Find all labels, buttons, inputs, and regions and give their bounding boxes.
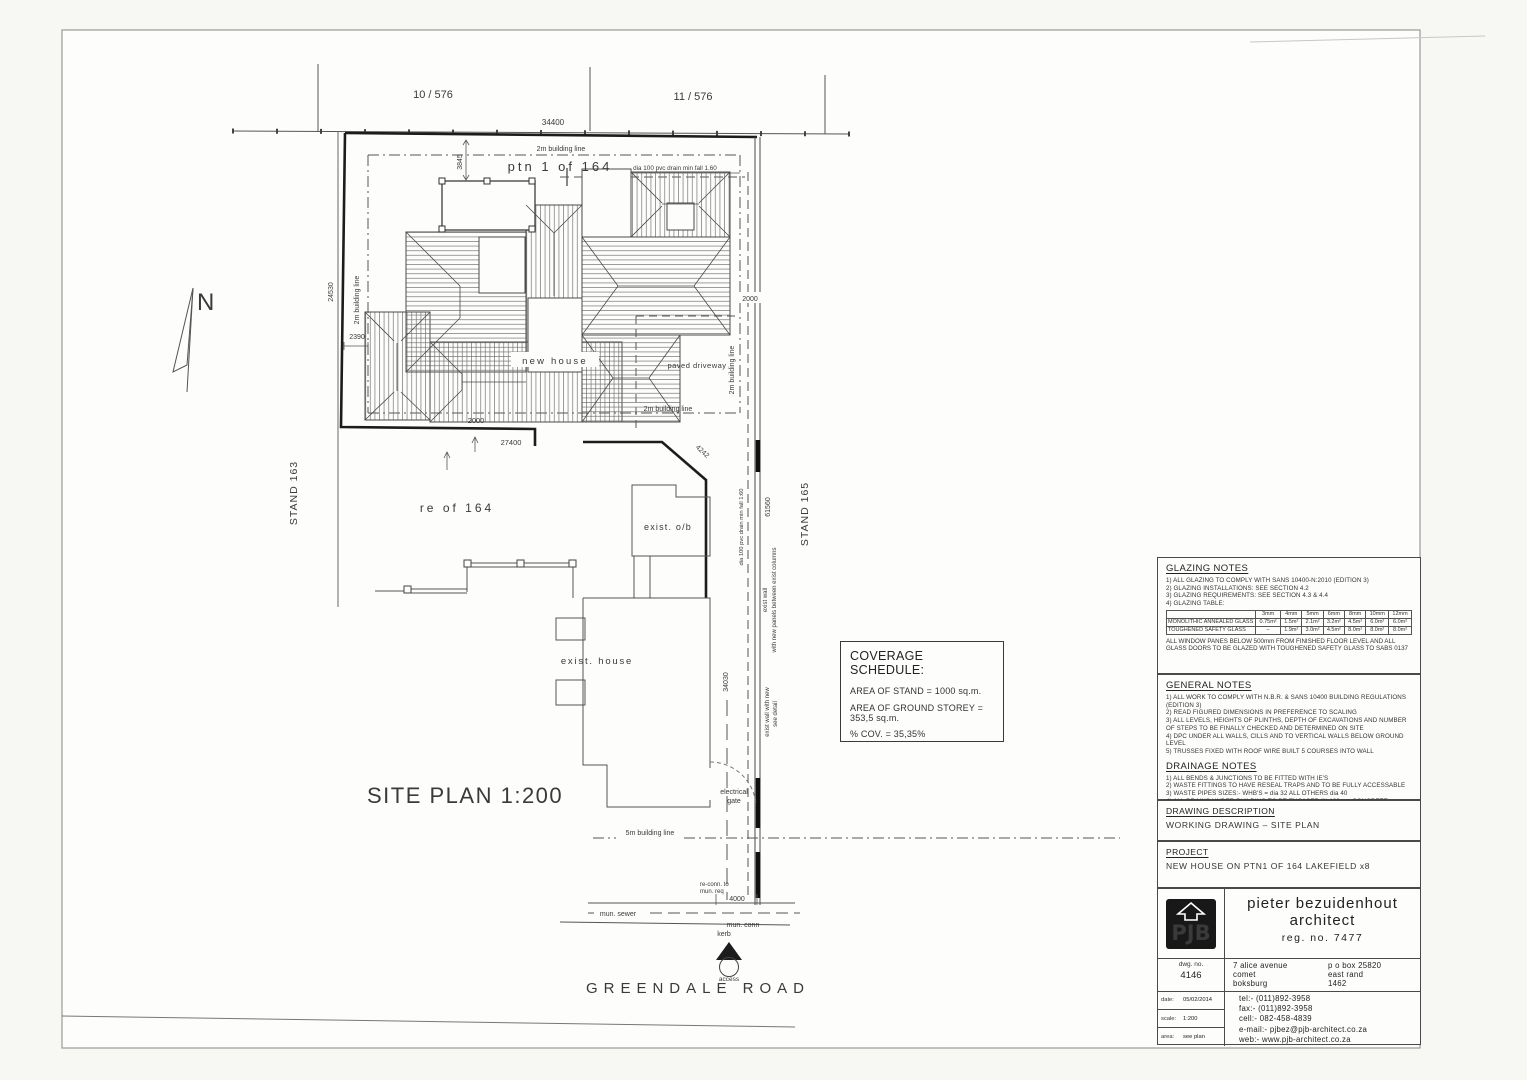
coverage-percent: % COV. = 35,35% — [850, 729, 994, 739]
project-value: NEW HOUSE ON PTN1 OF 164 LAKEFIELD x8 — [1166, 861, 1412, 871]
notes-panel: GLAZING NOTES 1) ALL GLAZING TO COMPLY W… — [1157, 557, 1421, 1045]
paved-driveway-label: paved driveway — [667, 361, 726, 370]
glazing-table: 3mm 4mm 5mm 6mm 8mm 10mm 12mm MONOLITHIC… — [1166, 610, 1412, 635]
pobox-line: 1462 — [1328, 979, 1381, 988]
exist-wall-label-1a: exist wall — [763, 588, 769, 612]
scale-value: 1:200 — [1183, 1016, 1198, 1022]
exist-wall-label-1b: with new panels between exist columns — [772, 547, 778, 653]
exist-wall-label-2b: see detail — [773, 701, 779, 727]
area-label: area: — [1158, 1034, 1183, 1040]
glazing-cell: 8.0m² — [1366, 626, 1389, 634]
plan-title: SITE PLAN 1:200 — [367, 783, 563, 808]
drainage-note: 3) WASTE PIPES SIZES:- WHB'S = dia 32 AL… — [1166, 790, 1412, 798]
dim-4000: 4000 — [729, 896, 745, 903]
glazing-cell: 6.0m² — [1389, 618, 1412, 626]
scale-label: scale: — [1158, 1016, 1183, 1022]
architect-reg-no: reg. no. 7477 — [1225, 932, 1420, 944]
open-court-left — [479, 237, 525, 293]
coverage-schedule: COVERAGE SCHEDULE: AREA OF STAND = 1000 … — [840, 641, 1004, 742]
glazing-col: 8mm — [1345, 610, 1366, 618]
mun-sewer-label: mun. sewer — [600, 911, 637, 918]
dim-3845: 3845 — [457, 154, 464, 170]
glazing-cell: 0.75m² — [1256, 618, 1281, 626]
glazing-row-label: MONOLITHIC ANNEALED GLASS — [1167, 618, 1256, 626]
glazing-cell: 1.5m² — [1281, 618, 1302, 626]
project-box: PROJECT NEW HOUSE ON PTN1 OF 164 LAKEFIE… — [1157, 841, 1421, 888]
dim-27400: 27400 — [501, 438, 522, 447]
logo-cell: PJB — [1158, 889, 1225, 958]
architect-name-line2: architect — [1225, 912, 1420, 929]
north-label: N — [197, 289, 214, 316]
open-gap — [582, 169, 631, 237]
coverage-area-storey: AREA OF GROUND STOREY = 353,5 sq.m. — [850, 703, 994, 723]
glazing-cell: 4.5m² — [1323, 626, 1344, 634]
web-line: web:- www.pjb-architect.co.za — [1239, 1035, 1420, 1045]
ptn-label: ptn 1 of 164 — [508, 159, 613, 174]
electrical-gate-label-2: gate — [727, 798, 741, 805]
building-line-2m-right-label: 2m building line — [729, 346, 736, 395]
drainage-note: 2) WASTE FITTINGS TO HAVE RESEAL TRAPS A… — [1166, 782, 1412, 790]
address-line: comet — [1233, 970, 1328, 979]
address-line: 7 alice avenue — [1233, 961, 1328, 970]
drawing-description-title: DRAWING DESCRIPTION — [1166, 806, 1412, 816]
architect-name-line1: pieter bezuidenhout — [1225, 895, 1420, 912]
glazing-col: 4mm — [1281, 610, 1302, 618]
glazing-col: 12mm — [1389, 610, 1412, 618]
kerb-label: kerb — [717, 931, 731, 938]
new-house-label: new house — [522, 356, 588, 367]
dim-34030: 34030 — [723, 672, 730, 692]
glazing-col: 3mm — [1256, 610, 1281, 618]
title-block: PJB pieter bezuidenhout architect reg. n… — [1157, 888, 1421, 1045]
general-note: 3) ALL LEVELS, HEIGHTS OF PLINTHS, DEPTH… — [1166, 717, 1412, 732]
glazing-notes-title: GLAZING NOTES — [1166, 563, 1412, 574]
glazing-col: 6mm — [1323, 610, 1344, 618]
drawing-description-box: DRAWING DESCRIPTION WORKING DRAWING – SI… — [1157, 800, 1421, 841]
drainage-note: 1) ALL BENDS & JUNCTIONS TO BE FITTED WI… — [1166, 775, 1412, 783]
glazing-cell: 2.1m² — [1302, 618, 1323, 626]
glazing-cell: 4.5m² — [1345, 618, 1366, 626]
coverage-area-stand: AREA OF STAND = 1000 sq.m. — [850, 686, 994, 696]
drawing-sheet: 10 / 576 11 / 576 34400 — [0, 0, 1527, 1080]
dim-24530: 24530 — [328, 282, 335, 302]
glazing-notes-box: GLAZING NOTES 1) ALL GLAZING TO COMPLY W… — [1157, 557, 1421, 674]
mun-conn-label: mun. conn — [727, 922, 760, 929]
open-court-right — [667, 203, 694, 230]
pobox-line: east rand — [1328, 970, 1381, 979]
general-note: 1) ALL WORK TO COMPLY WITH N.B.R. & SANS… — [1166, 694, 1412, 709]
general-notes-title: GENERAL NOTES — [1166, 680, 1412, 691]
dim-2390: 2390 — [349, 334, 365, 341]
glazing-note: 3) GLAZING REQUIREMENTS: SEE SECTION 4.3… — [1166, 592, 1412, 600]
glazing-cell: 1.9m² — [1281, 626, 1302, 634]
coverage-title: COVERAGE SCHEDULE: — [850, 649, 994, 677]
parcel-label-right: 11 / 576 — [674, 91, 713, 103]
email-line: e-mail:- pjbez@pjb-architect.co.za — [1239, 1025, 1420, 1035]
dwg-no-label: dwg. no. — [1158, 961, 1224, 968]
address-line: boksburg — [1233, 979, 1328, 988]
area-value: see plan — [1183, 1034, 1205, 1040]
stand-165-label: STAND 165 — [799, 482, 811, 546]
glazing-row-label: TOUGHENED SAFETY GLASS — [1167, 626, 1256, 634]
glazing-cell: 8.0m² — [1389, 626, 1412, 634]
building-line-2m-left-label: 2m building line — [354, 276, 361, 325]
glazing-cell: 3.2m² — [1323, 618, 1344, 626]
exist-wall-label-2a: exist wall with new — [765, 687, 771, 737]
building-line-2m-top-label: 2m building line — [537, 146, 586, 153]
date-value: 05/02/2014 — [1183, 997, 1212, 1003]
glazing-cell: 8.0m² — [1345, 626, 1366, 634]
glazing-note: 2) GLAZING INSTALLATIONS: SEE SECTION 4.… — [1166, 585, 1412, 593]
exist-ob-label: exist. o/b — [644, 522, 692, 532]
re-of-164-label: re of 164 — [420, 501, 494, 515]
stand-163-label: STAND 163 — [288, 461, 300, 525]
svg-text:PJB: PJB — [1171, 921, 1210, 945]
dim-2000-gate: 2000 — [468, 416, 485, 425]
glazing-col: 5mm — [1302, 610, 1323, 618]
building-line-5m-label: 5m building line — [626, 830, 675, 837]
glazing-note: 1) ALL GLAZING TO COMPLY WITH SANS 10400… — [1166, 577, 1412, 585]
general-note: 4) DPC UNDER ALL WALLS, CILLS AND TO VER… — [1166, 733, 1412, 748]
cell-line: cell:- 082-458-4839 — [1239, 1014, 1420, 1024]
electrical-gate-label-1: electrical — [720, 789, 748, 796]
reconn-label-2: mun. req — [700, 889, 724, 895]
reconn-label-1: re-conn. to — [700, 882, 729, 888]
dim-2000-right: 2000 — [742, 296, 758, 303]
dim-34400: 34400 — [542, 118, 565, 127]
pjb-logo-icon: PJB — [1166, 899, 1216, 949]
general-drainage-notes-box: GENERAL NOTES 1) ALL WORK TO COMPLY WITH… — [1157, 674, 1421, 800]
drainage-notes-title: DRAINAGE NOTES — [1166, 761, 1412, 772]
glazing-cell: 3.0m² — [1302, 626, 1323, 634]
date-label: date: — [1158, 997, 1183, 1003]
building-line-2m-bottom-label: 2m building line — [644, 406, 693, 413]
tel-line: tel:- (011)892-3958 — [1239, 994, 1420, 1004]
glazing-cell: – — [1256, 626, 1281, 634]
fax-line: fax:- (011)892-3958 — [1239, 1004, 1420, 1014]
glazing-cell: 6.0m² — [1366, 618, 1389, 626]
glazing-footnote: ALL WINDOW PANES BELOW 500mm FROM FINISH… — [1166, 638, 1412, 653]
general-note: 5) TRUSSES FIXED WITH ROOF WIRE BUILT 5 … — [1166, 748, 1412, 756]
open-porch — [442, 181, 535, 230]
drain-top-label: dia 100 pvc drain min fall 1.60 — [633, 165, 717, 172]
glazing-col: 10mm — [1366, 610, 1389, 618]
parcel-label-left: 10 / 576 — [413, 89, 453, 101]
drain-side-label: dia 100 pvc drain min fall 1:60 — [739, 488, 745, 565]
road-name: GREENDALE ROAD — [586, 980, 810, 997]
project-title: PROJECT — [1166, 847, 1412, 857]
pobox-line: p o box 25820 — [1328, 961, 1381, 970]
dim-61560: 61560 — [765, 497, 772, 517]
general-note: 2) READ FIGURED DIMENSIONS IN PREFERENCE… — [1166, 709, 1412, 717]
drawing-description-value: WORKING DRAWING – SITE PLAN — [1166, 820, 1412, 830]
glazing-note: 4) GLAZING TABLE: — [1166, 600, 1412, 608]
dwg-no-value: 4146 — [1158, 970, 1224, 981]
exist-house-label: exist. house — [561, 656, 633, 667]
